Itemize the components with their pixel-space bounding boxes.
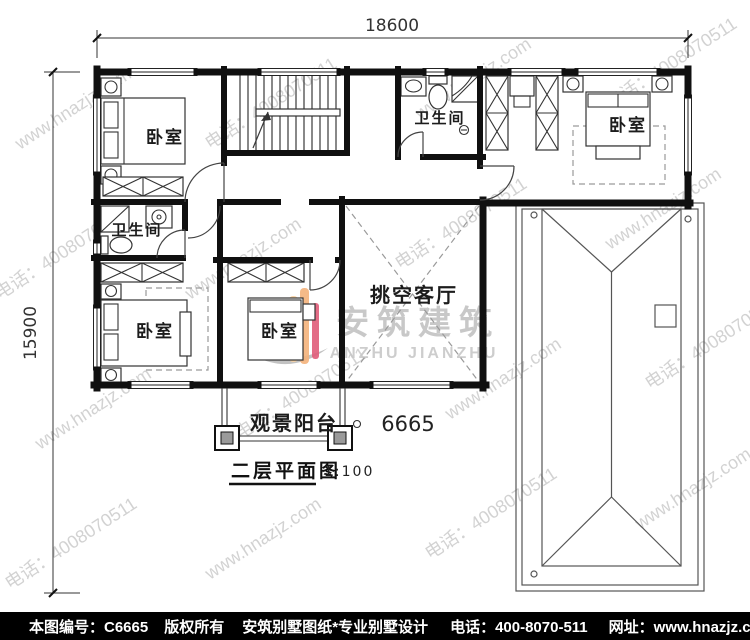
closet-wardrobes xyxy=(486,76,558,150)
watermark-text: 电话：4008070511 xyxy=(421,463,560,563)
floorplan-sheet: www.hnazjz.com 电话：4008070511 www.hnazjz.… xyxy=(0,0,750,640)
footer-bar: 本图编号：C6665 版权所有 安筑别墅图纸*专业别墅设计 电话：400-807… xyxy=(0,612,750,640)
footer-website: 网址：www.hnazjz.com xyxy=(609,616,750,637)
watermark-text: 电话：4008070511 xyxy=(391,173,530,273)
room-label-bath-top: 卫生间 xyxy=(414,109,465,127)
roof-plan xyxy=(516,203,704,591)
room-label-living-void: 挑空客厅 xyxy=(370,283,458,307)
logo-name-cn: 安筑建筑 xyxy=(336,304,500,341)
room-label-bedroom-tl: 卧室 xyxy=(146,127,184,147)
toilet-tank xyxy=(429,76,447,84)
plan-number: 6665 xyxy=(381,412,434,436)
dimension-width-label: 18600 xyxy=(365,16,419,36)
toilet-tank xyxy=(101,236,108,254)
roof-chimney xyxy=(655,305,676,327)
footer-brand: 安筑别墅图纸*专业别墅设计 xyxy=(242,616,428,637)
drain-icon xyxy=(354,421,361,428)
room-label-bedroom-bl: 卧室 xyxy=(136,321,174,341)
door-arc xyxy=(398,132,423,157)
dresser xyxy=(510,76,534,96)
room-label-bedroom-bm: 卧室 xyxy=(261,321,299,341)
bed-bottom-middle xyxy=(228,263,315,360)
bed-footboard xyxy=(596,146,640,159)
room-label-balcony: 观景阳台 xyxy=(250,411,338,435)
logo-name-en: ANZHU JIANZHU xyxy=(330,345,499,362)
roof-drain-icon xyxy=(531,571,537,577)
door-arc xyxy=(310,260,340,290)
plan-scale: 1:100 xyxy=(324,464,374,480)
room-label-bath-left: 卫生间 xyxy=(111,221,162,239)
footer-phone: 电话：400-8070-511 xyxy=(450,616,588,637)
watermark-text: www.hnazjz.com xyxy=(200,494,324,584)
dimension-height-label: 15900 xyxy=(21,306,41,360)
footer-sheet-number: 本图编号：C6665 xyxy=(29,616,148,637)
floorplan-drawing: www.hnazjz.com 电话：4008070511 www.hnazjz.… xyxy=(0,0,750,612)
watermark-text: 电话：4008070511 xyxy=(1,493,140,593)
dimension-top: 18600 xyxy=(93,16,692,58)
footer-copyright: 版权所有 xyxy=(164,616,224,637)
toilet xyxy=(110,237,132,253)
toilet xyxy=(429,85,447,109)
watermark-text: 电话：4008070511 xyxy=(641,293,750,393)
nightstand xyxy=(303,304,315,320)
room-label-bedroom-tr: 卧室 xyxy=(609,115,647,135)
roof-drain-icon xyxy=(531,212,537,218)
watermark-text: www.hnazjz.com xyxy=(630,444,750,534)
roof-drain-icon xyxy=(685,216,691,222)
door-arc xyxy=(185,163,224,202)
bed-footboard xyxy=(180,312,191,356)
door-arc xyxy=(188,206,220,238)
watermark-text: www.hnazjz.com xyxy=(30,364,154,454)
